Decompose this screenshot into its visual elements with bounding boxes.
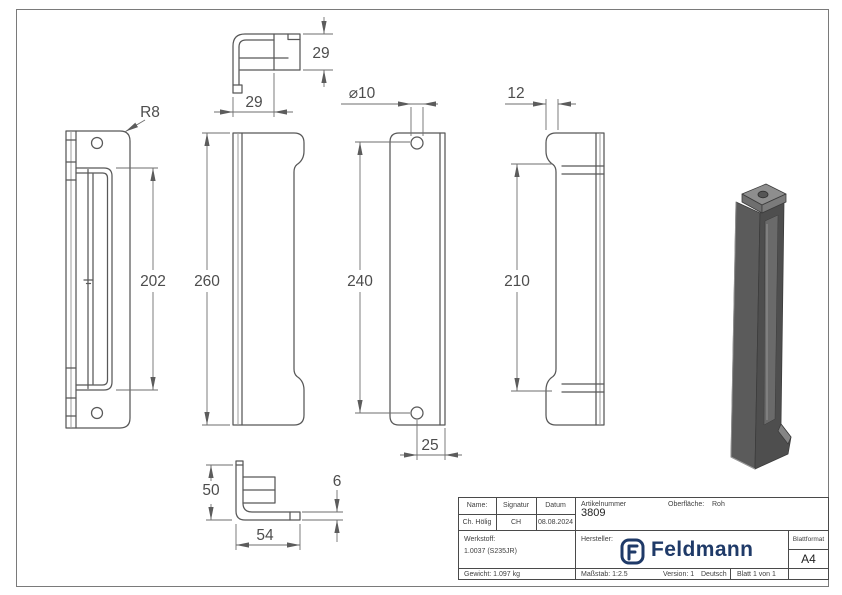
- bottom-view: 50 54 6: [202, 461, 343, 550]
- weight-value: Gewicht: 1.097 kg: [464, 570, 520, 579]
- article-number: 3809: [581, 509, 605, 518]
- language-value: Deutsch: [701, 570, 727, 579]
- manufacturer-label: Hersteller:: [581, 535, 613, 544]
- dim-lip: 12: [507, 85, 524, 102]
- brand-wordmark: Feldmann: [651, 538, 753, 562]
- side-view-260: 260: [194, 133, 304, 425]
- author-name: Ch. Hölig: [458, 514, 496, 530]
- dim-foot-height: 50: [202, 482, 220, 499]
- dim-slot: 202: [140, 273, 166, 290]
- sheet-count: Blatt 1 von 1: [737, 570, 776, 579]
- dim-hole-offset: 25: [421, 437, 438, 454]
- dim-hole-span: 240: [347, 273, 373, 290]
- dim-notch: 210: [504, 273, 530, 290]
- dim-top-height: 29: [312, 45, 329, 62]
- side-view-210: 12 210: [504, 85, 604, 425]
- dim-radius: R8: [140, 104, 160, 121]
- scale-value: Maßstab: 1:2.5: [581, 570, 628, 579]
- surface-label: Oberfläche:: [668, 500, 704, 509]
- iso-render: [731, 184, 791, 469]
- name-label: Name:: [458, 497, 496, 514]
- dim-top-width: 29: [245, 94, 262, 111]
- surface-value: Roh: [712, 500, 725, 509]
- date-label: Datum: [536, 497, 575, 514]
- drawing-sheet: 29 29 R8 202 260: [0, 0, 842, 595]
- author-signature: CH: [496, 514, 536, 530]
- render-hole: [758, 191, 768, 198]
- format-label: Blattformat: [788, 530, 829, 549]
- feldmann-logo-icon: [620, 538, 645, 565]
- dim-height: 260: [194, 273, 220, 290]
- dim-hole-dia: ⌀10: [349, 85, 376, 102]
- front-view: R8 202: [66, 104, 166, 428]
- format-value: A4: [788, 549, 829, 568]
- drawing-date: 08.08.2024: [536, 514, 575, 530]
- material-value: 1.0037 (S235JR): [464, 547, 517, 556]
- version-value: Version: 1: [663, 570, 694, 579]
- sheet-border: [17, 10, 829, 587]
- top-view: 29 29: [214, 17, 333, 117]
- material-label: Werkstoff:: [464, 535, 495, 544]
- dim-thickness: 6: [333, 473, 342, 490]
- signature-label: Signatur: [496, 497, 536, 514]
- dim-foot-width: 54: [256, 527, 274, 544]
- hole-view: ⌀10 240 25: [341, 85, 462, 460]
